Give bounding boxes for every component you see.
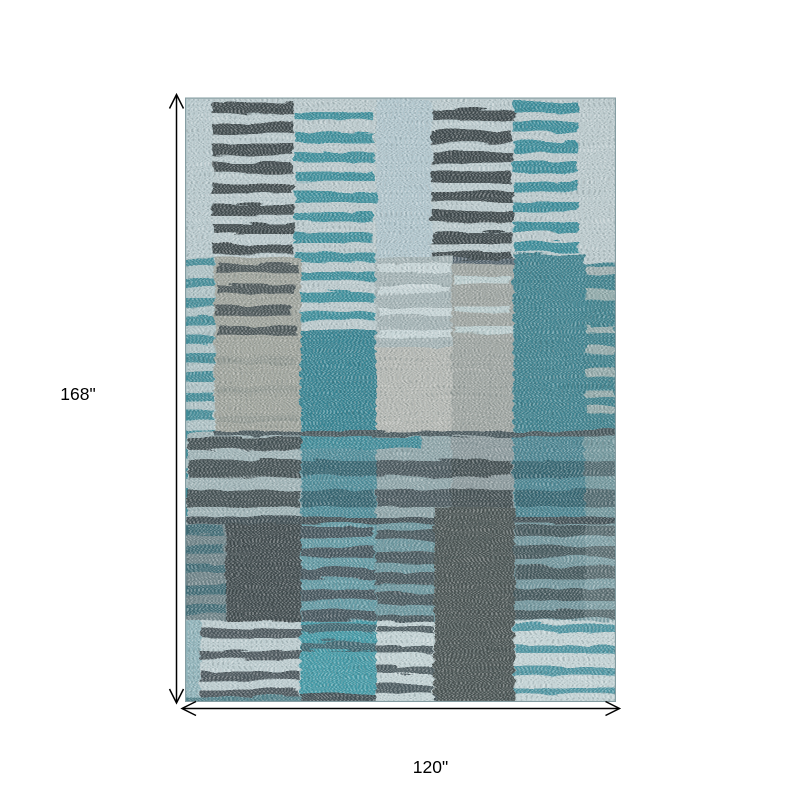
svg-text:120": 120" [413, 757, 448, 777]
svg-text:168": 168" [60, 384, 95, 404]
